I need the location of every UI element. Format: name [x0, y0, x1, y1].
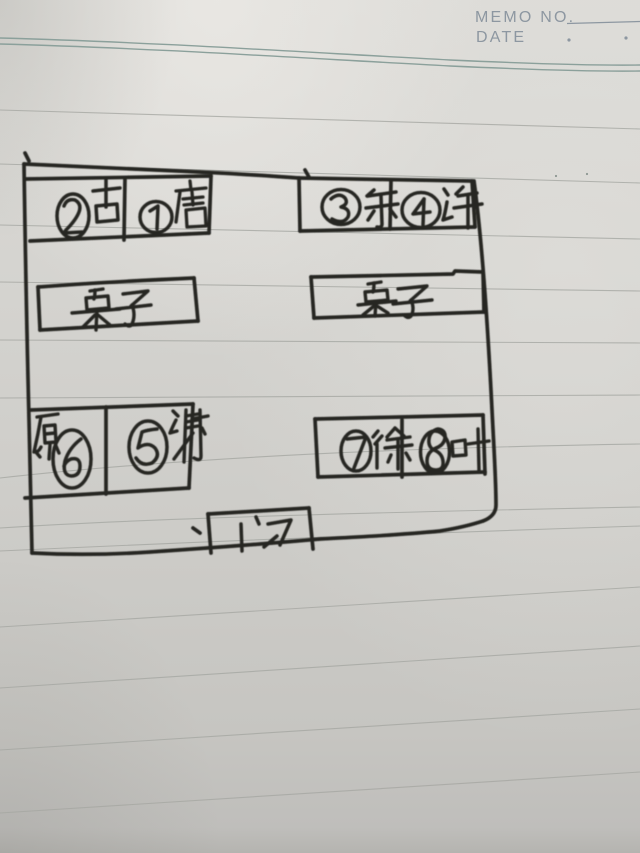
- svg-text:MEMO NO.: MEMO NO.: [475, 9, 575, 26]
- svg-text:DATE: DATE: [476, 29, 526, 46]
